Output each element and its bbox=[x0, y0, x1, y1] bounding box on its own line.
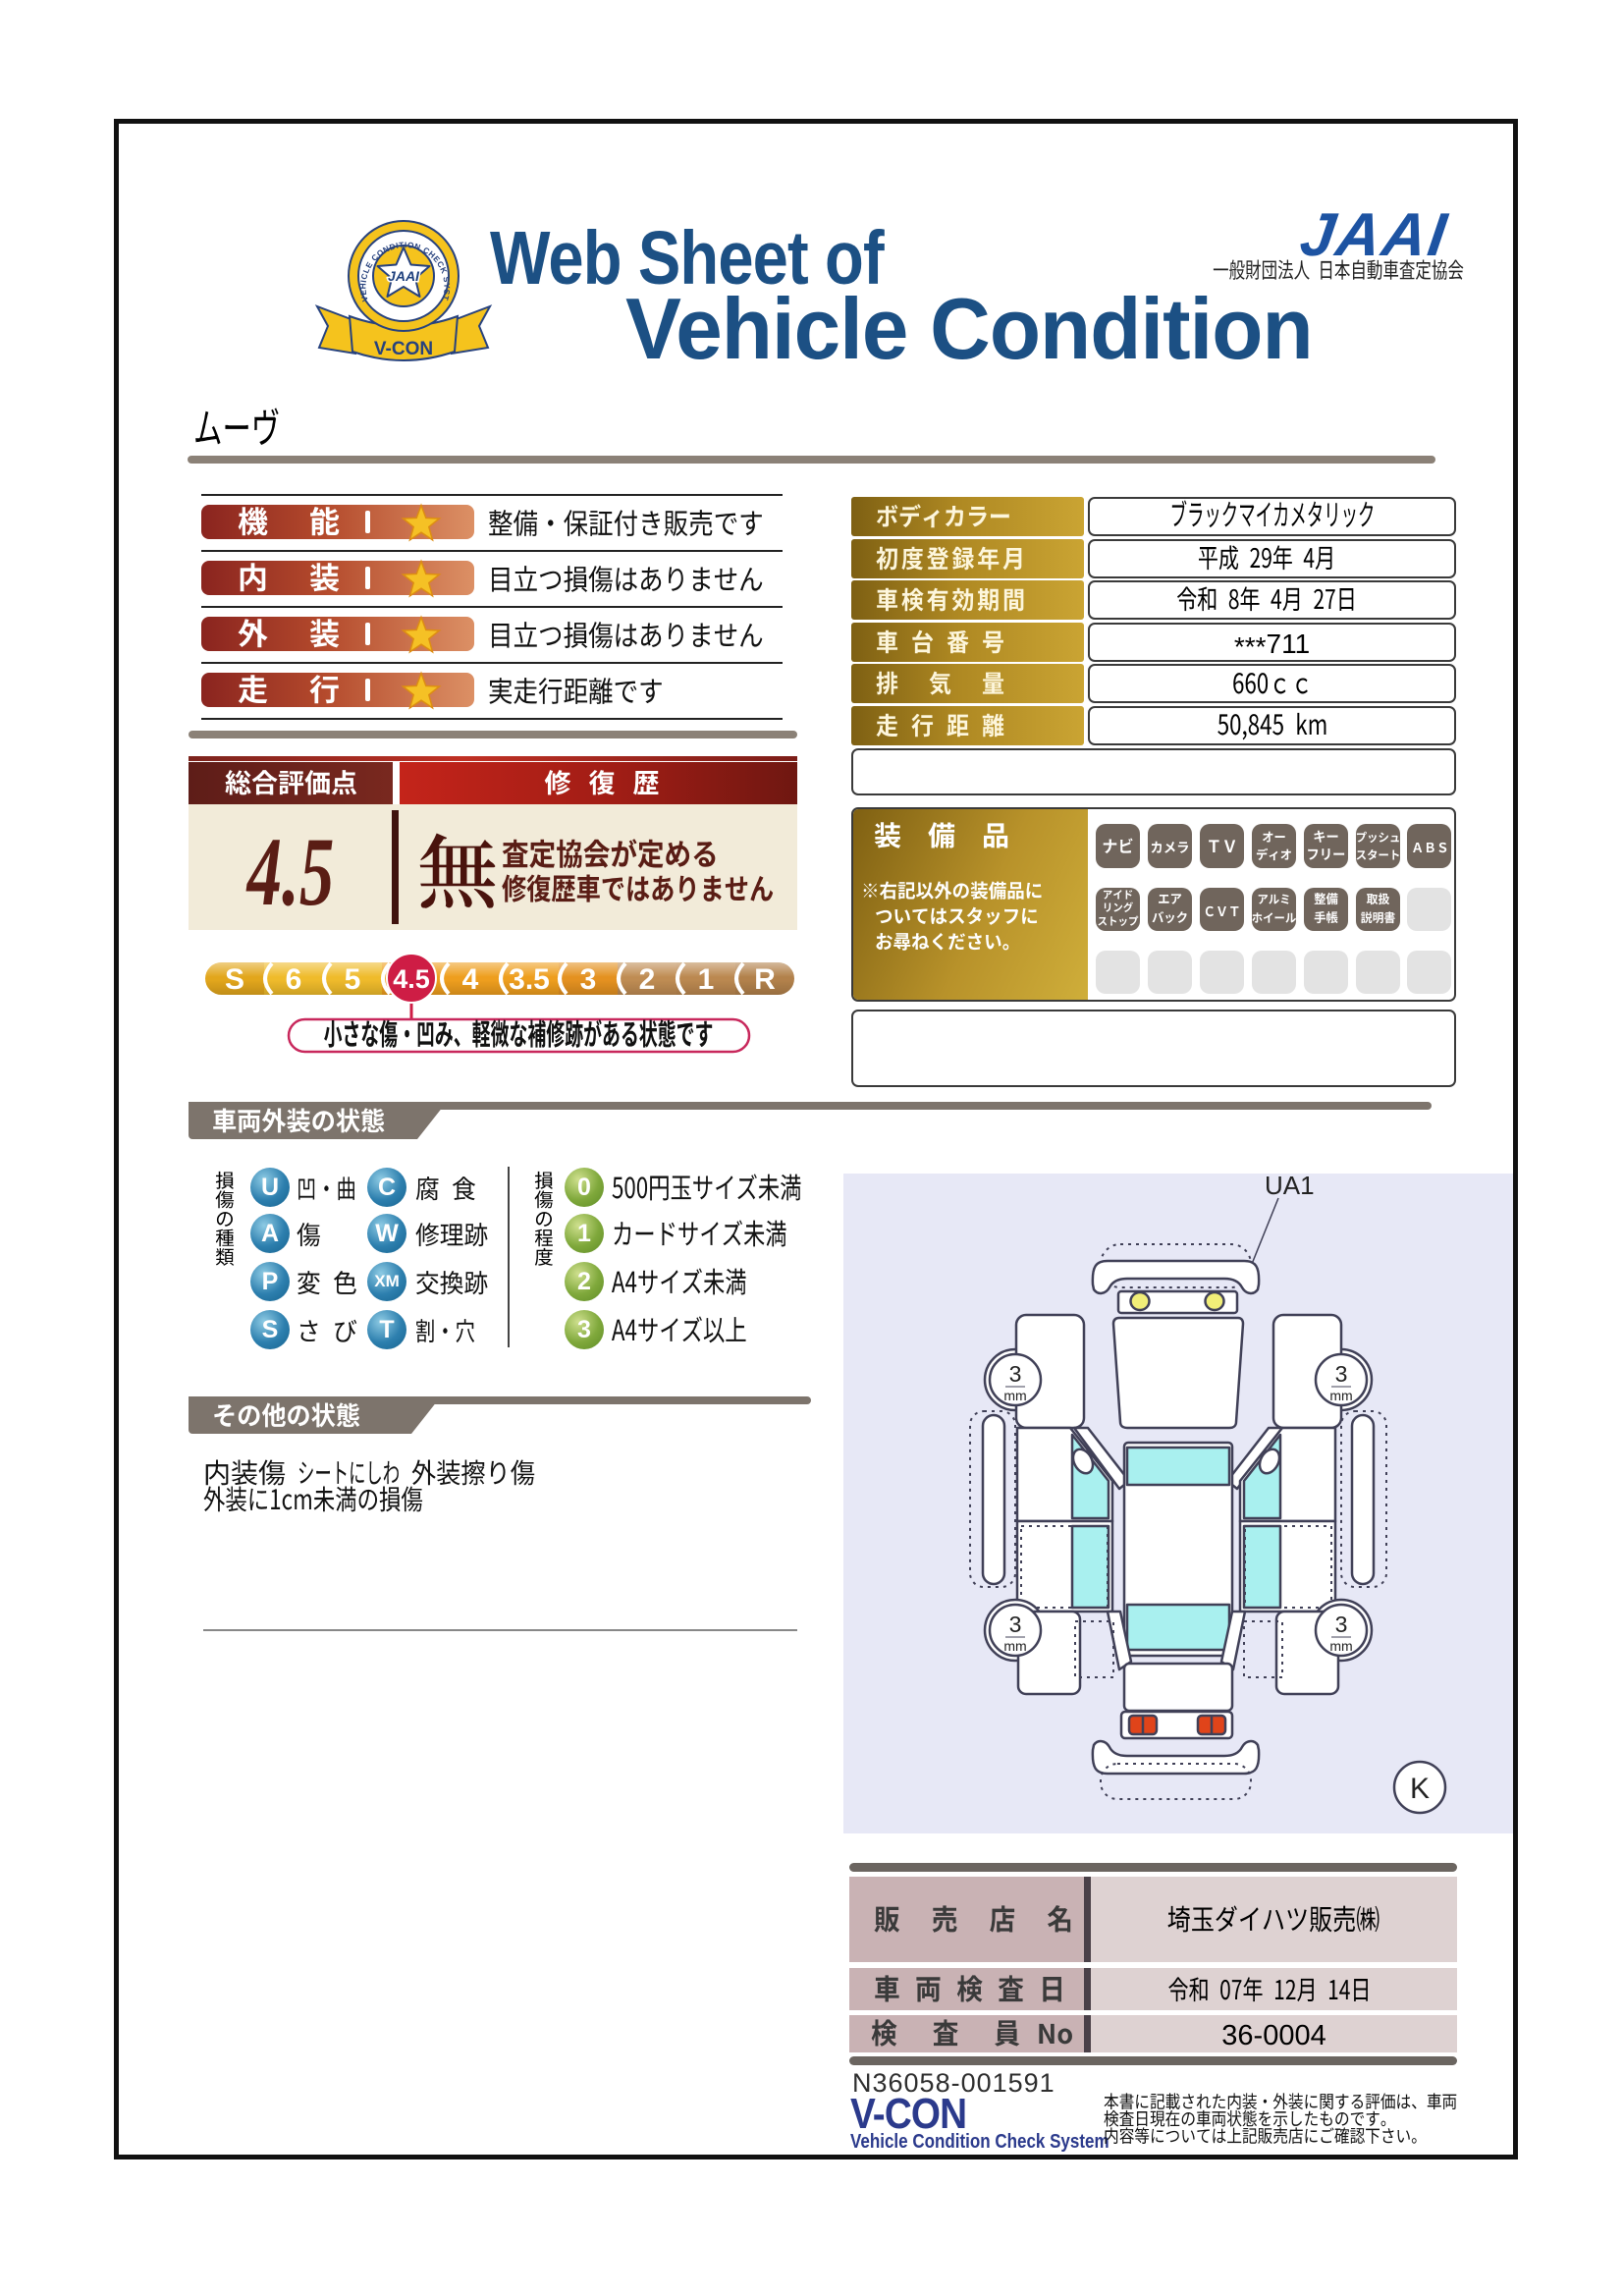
svg-text:mm: mm bbox=[1329, 1388, 1352, 1403]
svg-text:V-CON: V-CON bbox=[374, 339, 433, 359]
svg-text:mm: mm bbox=[1003, 1388, 1026, 1403]
svg-text:R: R bbox=[754, 963, 776, 996]
svg-text:5: 5 bbox=[345, 963, 361, 996]
svg-text:S: S bbox=[225, 963, 244, 996]
svg-text:3: 3 bbox=[1009, 1612, 1022, 1637]
svg-text:3: 3 bbox=[580, 963, 597, 996]
svg-text:3: 3 bbox=[1335, 1612, 1348, 1637]
svg-text:1: 1 bbox=[698, 963, 715, 996]
svg-text:UA1: UA1 bbox=[1265, 1174, 1315, 1200]
svg-text:3: 3 bbox=[1009, 1361, 1022, 1387]
svg-text:6: 6 bbox=[286, 963, 302, 996]
svg-text:4: 4 bbox=[462, 963, 479, 996]
svg-text:mm: mm bbox=[1003, 1638, 1026, 1654]
svg-text:3.5: 3.5 bbox=[509, 963, 550, 996]
svg-text:mm: mm bbox=[1329, 1638, 1352, 1654]
svg-text:JAAI: JAAI bbox=[388, 268, 420, 284]
svg-text:3: 3 bbox=[1335, 1361, 1348, 1387]
svg-text:2: 2 bbox=[639, 963, 656, 996]
svg-text:K: K bbox=[1410, 1773, 1430, 1805]
svg-text:4.5: 4.5 bbox=[393, 964, 430, 994]
